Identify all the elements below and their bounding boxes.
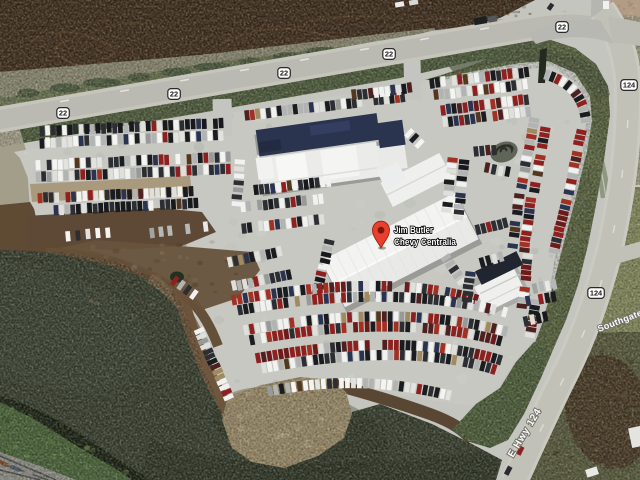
svg-text:Jim Butler: Jim Butler xyxy=(394,225,433,236)
svg-text:22: 22 xyxy=(558,23,566,32)
svg-text:124: 124 xyxy=(623,81,636,90)
svg-text:22: 22 xyxy=(280,69,288,78)
svg-text:22: 22 xyxy=(385,50,393,59)
svg-text:124: 124 xyxy=(590,289,603,298)
svg-text:22: 22 xyxy=(170,90,178,99)
svg-text:22: 22 xyxy=(59,109,67,118)
svg-text:Chevy Centralia: Chevy Centralia xyxy=(394,237,457,248)
